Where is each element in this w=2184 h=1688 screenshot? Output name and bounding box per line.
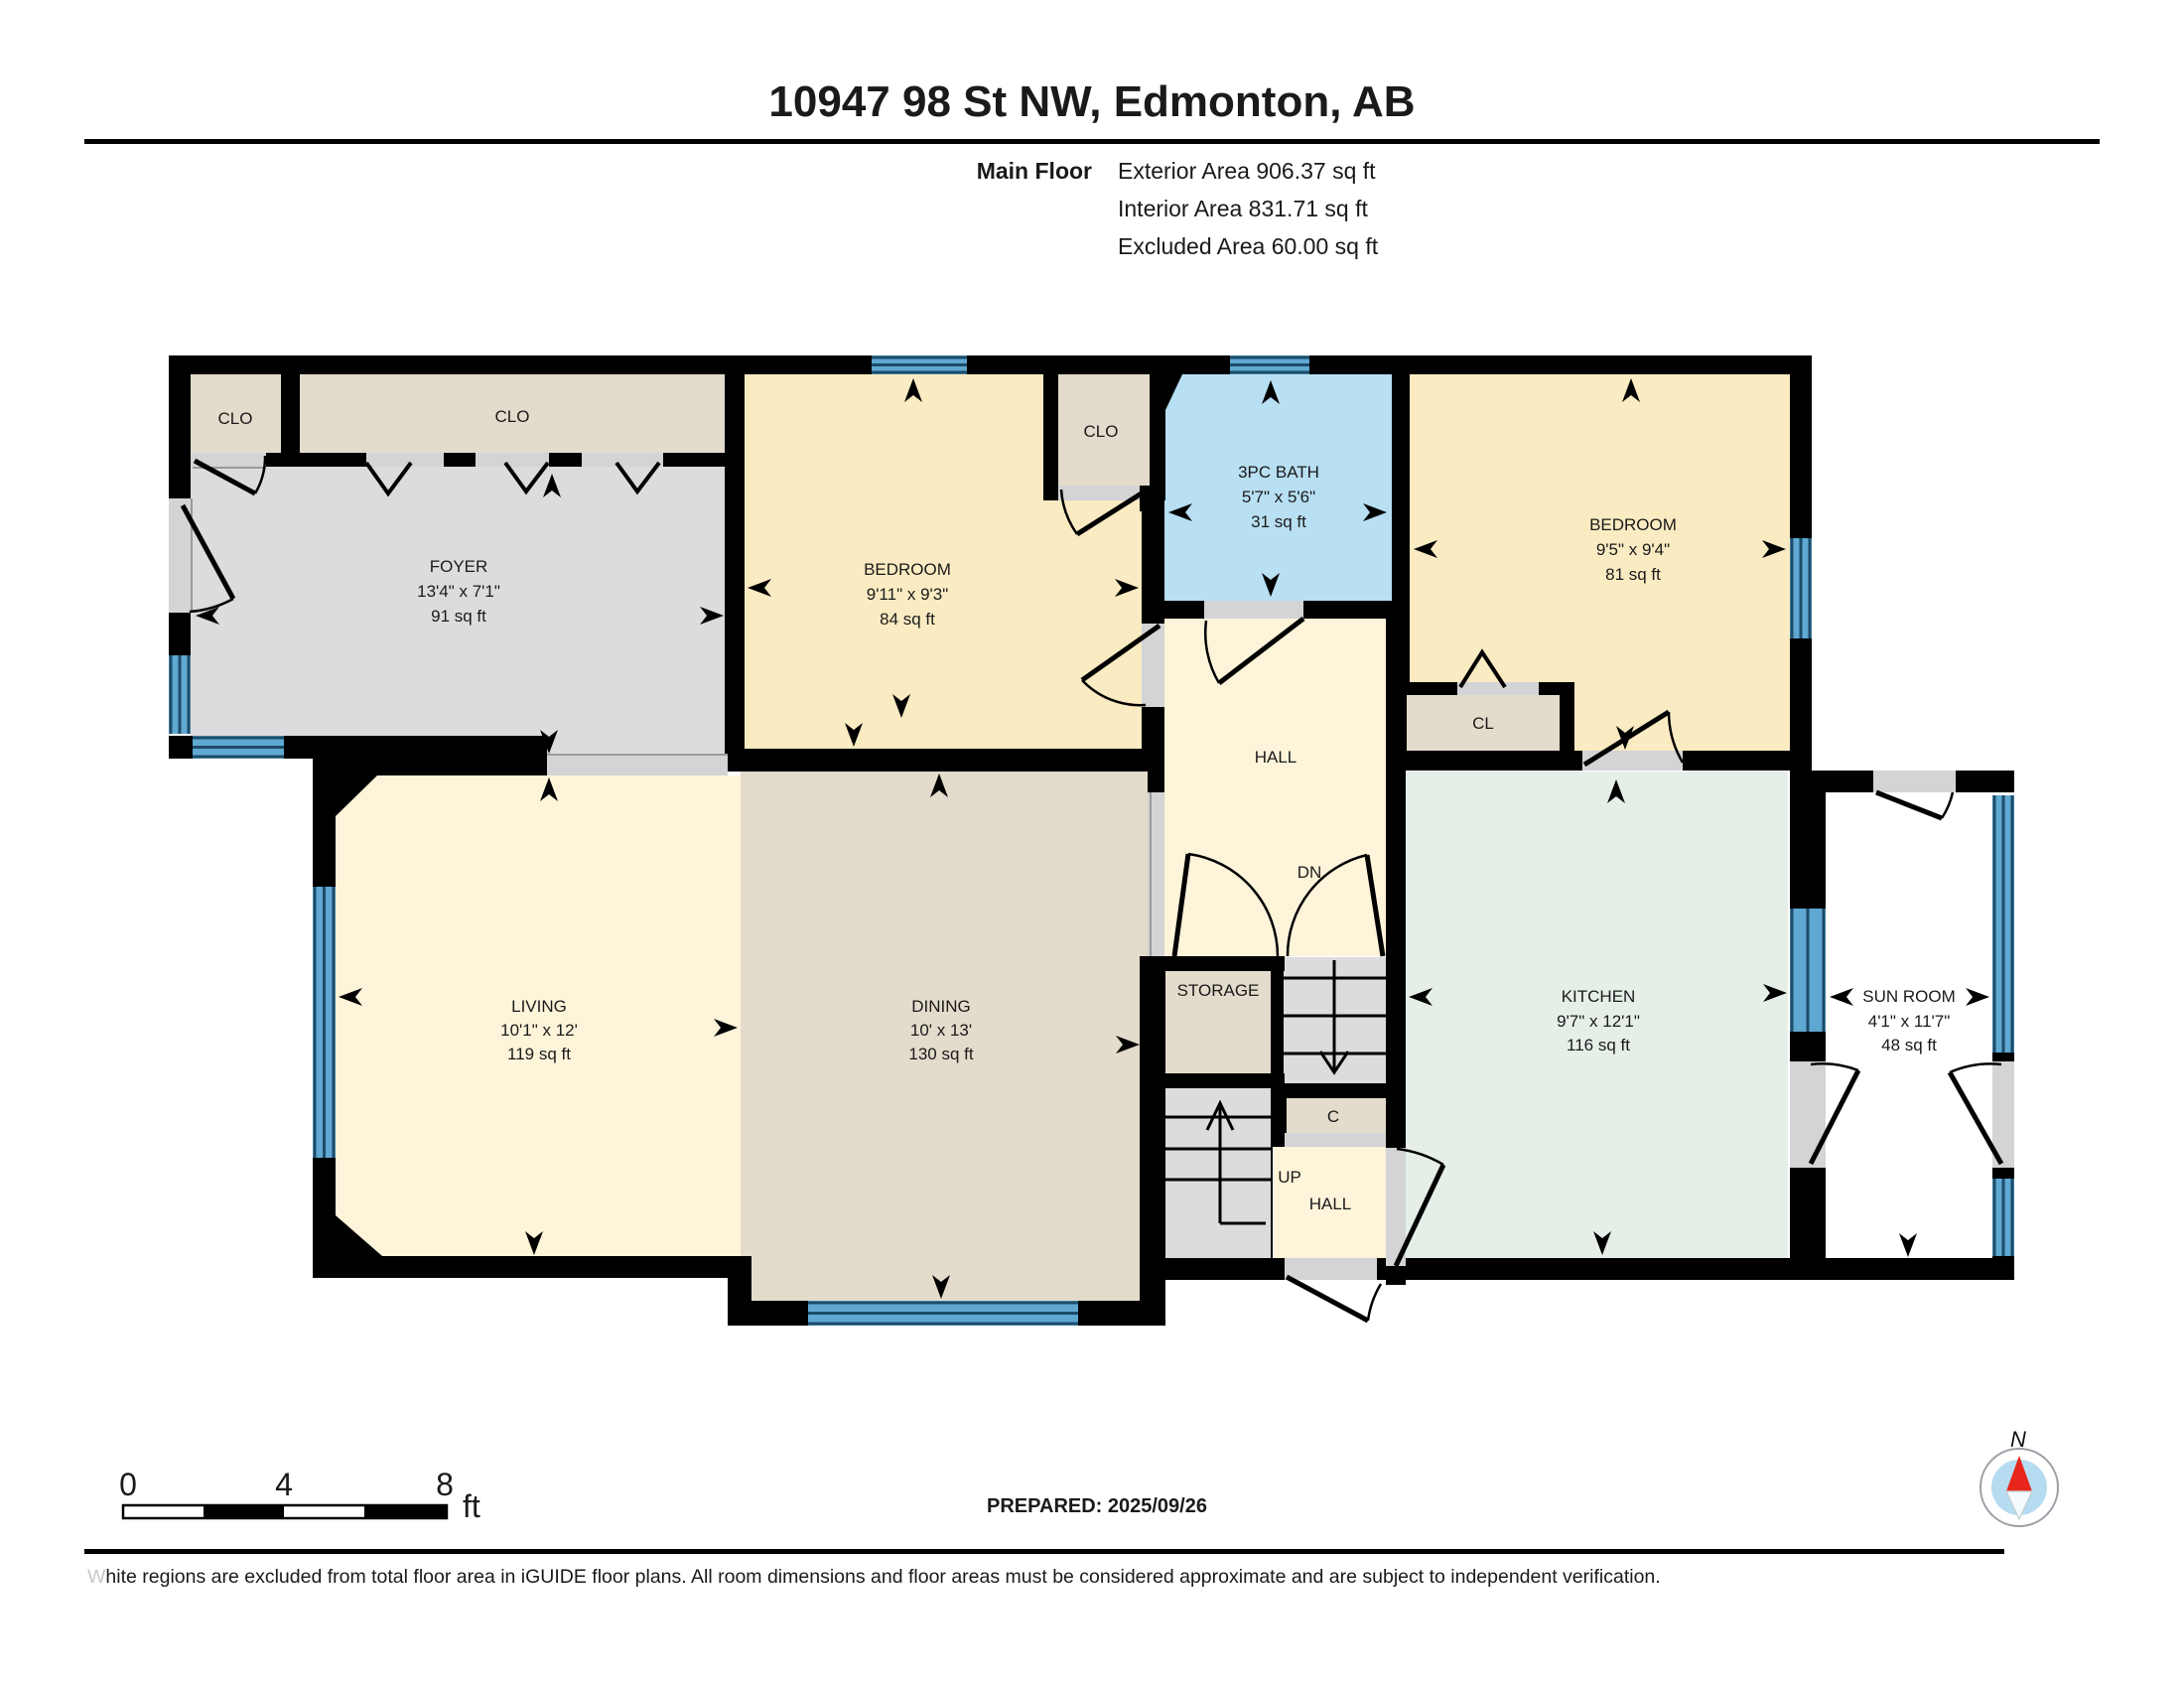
- svg-text:SUN ROOM: SUN ROOM: [1862, 987, 1956, 1006]
- svg-text:8: 8: [436, 1467, 454, 1502]
- svg-text:4: 4: [275, 1467, 293, 1502]
- svg-text:31 sq ft: 31 sq ft: [1251, 512, 1306, 531]
- svg-text:10' x 13': 10' x 13': [910, 1021, 972, 1040]
- svg-text:CLO: CLO: [218, 409, 253, 428]
- svg-text:DN: DN: [1297, 863, 1322, 882]
- svg-text:C: C: [1327, 1107, 1339, 1126]
- svg-text:CLO: CLO: [495, 407, 530, 426]
- svg-text:FOYER: FOYER: [430, 557, 488, 576]
- svg-text:BEDROOM: BEDROOM: [864, 560, 951, 579]
- svg-text:CL: CL: [1472, 714, 1494, 733]
- svg-text:BEDROOM: BEDROOM: [1589, 515, 1677, 534]
- svg-text:Exterior Area 906.37 sq ft: Exterior Area 906.37 sq ft: [1118, 158, 1376, 184]
- svg-text:9'7" x 12'1": 9'7" x 12'1": [1557, 1012, 1640, 1031]
- svg-text:5'7" x 5'6": 5'7" x 5'6": [1242, 488, 1315, 506]
- svg-text:4'1" x 11'7": 4'1" x 11'7": [1868, 1012, 1951, 1031]
- svg-text:Excluded Area 60.00 sq ft: Excluded Area 60.00 sq ft: [1118, 233, 1379, 259]
- svg-text:N: N: [2010, 1427, 2026, 1452]
- svg-text:UP: UP: [1278, 1168, 1301, 1187]
- svg-text:48 sq ft: 48 sq ft: [1881, 1036, 1937, 1055]
- svg-text:9'11" x 9'3": 9'11" x 9'3": [867, 585, 949, 604]
- svg-text:119 sq ft: 119 sq ft: [507, 1045, 571, 1063]
- svg-text:10947 98 St NW, Edmonton, AB: 10947 98 St NW, Edmonton, AB: [768, 77, 1415, 126]
- svg-text:CLO: CLO: [1084, 422, 1119, 441]
- svg-text:White regions are excluded fro: White regions are excluded from total fl…: [87, 1566, 1661, 1588]
- svg-text:Main Floor: Main Floor: [977, 158, 1092, 184]
- svg-text:PREPARED: 2025/09/26: PREPARED: 2025/09/26: [987, 1495, 1207, 1517]
- svg-text:0: 0: [119, 1467, 137, 1502]
- svg-text:Interior Area 831.71 sq ft: Interior Area 831.71 sq ft: [1118, 196, 1368, 221]
- svg-text:130 sq ft: 130 sq ft: [908, 1045, 973, 1063]
- svg-text:ft: ft: [463, 1488, 480, 1524]
- svg-text:81 sq ft: 81 sq ft: [1605, 565, 1661, 584]
- svg-text:116 sq ft: 116 sq ft: [1567, 1036, 1630, 1055]
- svg-text:STORAGE: STORAGE: [1177, 981, 1260, 1000]
- svg-text:HALL: HALL: [1255, 748, 1297, 767]
- svg-text:9'5" x 9'4": 9'5" x 9'4": [1596, 540, 1670, 559]
- svg-text:3PC BATH: 3PC BATH: [1238, 463, 1319, 482]
- svg-text:LIVING: LIVING: [511, 997, 567, 1016]
- svg-text:10'1" x 12': 10'1" x 12': [500, 1021, 578, 1040]
- svg-text:HALL: HALL: [1309, 1195, 1352, 1213]
- svg-text:91 sq ft: 91 sq ft: [431, 607, 486, 626]
- svg-text:84 sq ft: 84 sq ft: [880, 610, 935, 629]
- svg-text:13'4" x 7'1": 13'4" x 7'1": [417, 582, 500, 601]
- svg-text:DINING: DINING: [911, 997, 971, 1016]
- svg-text:KITCHEN: KITCHEN: [1562, 987, 1636, 1006]
